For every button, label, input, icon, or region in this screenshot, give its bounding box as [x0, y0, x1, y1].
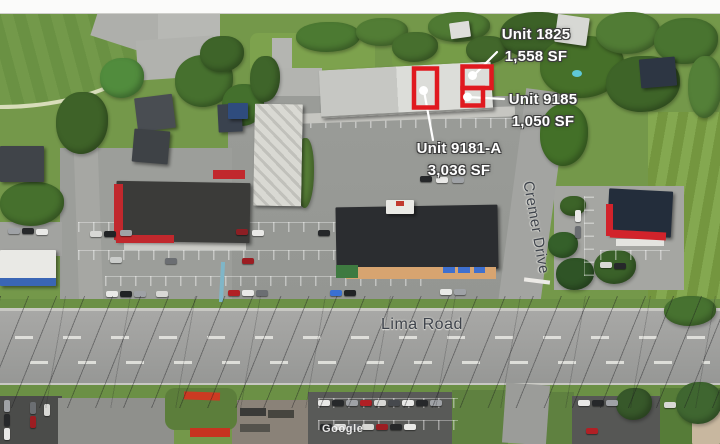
- unit-9181a-size: 3,036 SF: [404, 160, 514, 182]
- unit-9185-label: Unit 9185 1,050 SF: [498, 89, 588, 133]
- leader-dot: [463, 93, 472, 102]
- unit-1825-label: Unit 1825 1,558 SF: [494, 24, 578, 68]
- annotation-overlay: [0, 0, 720, 444]
- unit-1825-size: 1,558 SF: [494, 46, 578, 68]
- unit-9185-name: Unit 9185: [498, 89, 588, 111]
- unit-1825-name: Unit 1825: [494, 24, 578, 46]
- leader-dot: [468, 71, 477, 80]
- aerial-map: Unit 1825 1,558 SF Unit 9185 1,050 SF Un…: [0, 0, 720, 444]
- leader-line-unit-9181a: [424, 91, 433, 140]
- unit-9185-size: 1,050 SF: [498, 111, 588, 133]
- unit-9181a-label: Unit 9181-A 3,036 SF: [404, 138, 514, 182]
- unit-9181a-name: Unit 9181-A: [404, 138, 514, 160]
- google-watermark: Google: [322, 423, 364, 435]
- unit-1825-outline: [463, 67, 492, 89]
- leader-dot: [419, 86, 428, 95]
